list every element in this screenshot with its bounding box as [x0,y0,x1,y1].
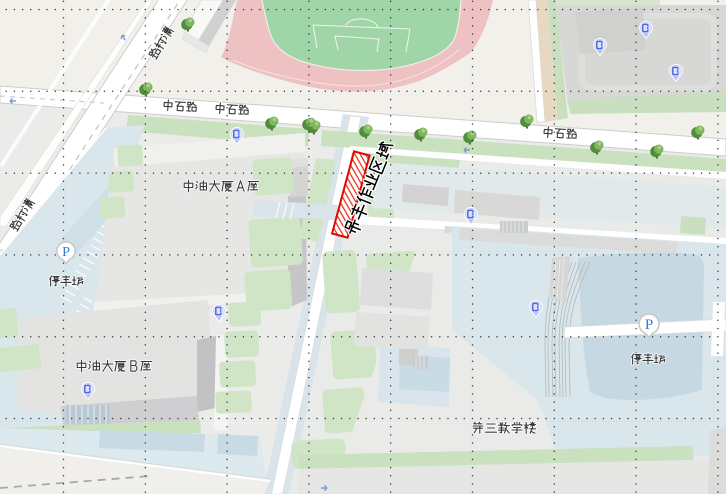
svg-text:P: P [645,317,653,333]
svg-text:P: P [62,245,70,260]
